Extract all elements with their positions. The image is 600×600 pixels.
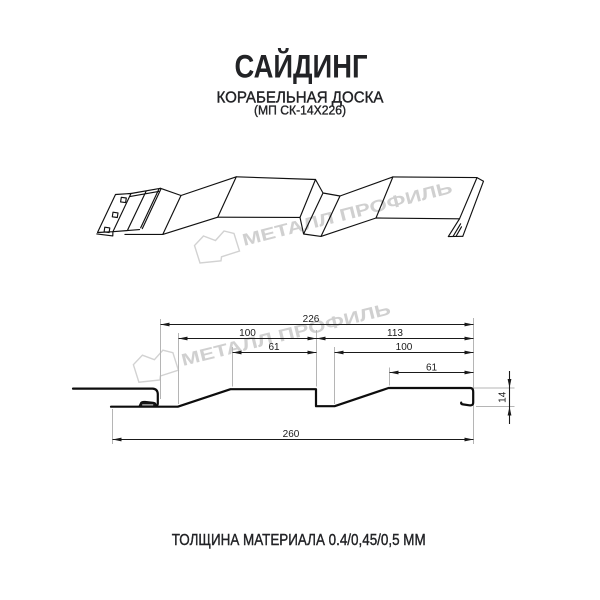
svg-text:100: 100 <box>396 342 413 353</box>
svg-text:САЙДИНГ: САЙДИНГ <box>235 49 368 85</box>
svg-text:260: 260 <box>283 429 300 440</box>
svg-text:61: 61 <box>268 342 280 353</box>
svg-text:ТОЛЩИНА МАТЕРИАЛА 0.4/0,45/0,5: ТОЛЩИНА МАТЕРИАЛА 0.4/0,45/0,5 ММ <box>172 532 426 549</box>
svg-text:226: 226 <box>303 314 320 325</box>
svg-text:113: 113 <box>387 328 403 339</box>
svg-text:61: 61 <box>426 363 438 374</box>
svg-text:(МП СК-14Х226): (МП СК-14Х226) <box>254 104 346 118</box>
svg-text:14: 14 <box>498 391 509 403</box>
svg-text:100: 100 <box>239 328 256 339</box>
